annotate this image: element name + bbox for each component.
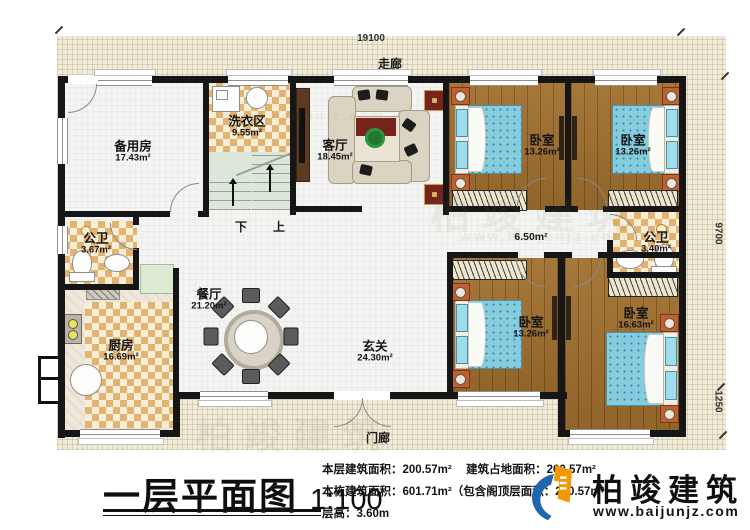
room-label-bedroom3: 卧室 13.26m² [513,316,548,339]
wall [565,252,572,258]
wall-tv [572,116,577,160]
cushion [357,89,370,101]
stair-up-label: 上 [271,218,287,235]
dimension-width: 19100 [341,33,401,44]
window-sill [198,400,272,407]
kitchen-round-table [70,364,102,396]
brand-logo-icon [524,462,584,522]
room-label-spare-room: 备用房 17.43m² [114,140,152,163]
dining-chair [204,328,219,346]
window [334,75,408,86]
room-label-dining: 餐厅 21.20m² [191,288,226,311]
brand-website: www.baijunjz.com [593,503,739,519]
window-sill [226,69,292,76]
room-label-kitchen: 厨房 16.69m² [103,339,138,362]
fridge [140,264,174,294]
room-area: 16.63m² [618,321,653,331]
wall [443,80,449,215]
room-label-bath-right: 公卫 3.40m² [641,231,671,254]
room-label-bedroom4: 卧室 16.63m² [618,307,653,330]
window-sill [94,69,156,76]
wall-tv [552,296,557,340]
wall [58,211,170,217]
dining-table-top [234,320,268,354]
window [228,75,288,86]
wall [290,206,362,212]
title-underline [103,509,321,512]
wall [290,80,296,215]
stat-label: 层高： [322,508,357,520]
stair-arrowhead [266,164,274,170]
stat-value: 3.60m [357,508,390,520]
nightstand [451,283,470,301]
room-label-bedroom1: 卧室 13.26m² [524,134,559,157]
window-sill [332,69,412,76]
wall [603,206,686,212]
room-label-entry-hall: 玄关 24.30m² [357,340,392,363]
bed-sheet [468,107,486,172]
dimension-height-porch: 1250 [713,377,724,427]
pillow [456,304,468,332]
stair-down-label: 下 [233,218,249,235]
wall [545,206,578,212]
wall [565,80,571,212]
laundry-sink [246,87,268,109]
room-area: 3.40m² [641,245,671,255]
window [595,75,657,86]
pillow [456,109,468,137]
dining-chair [284,328,299,346]
side-door-gap [68,75,98,84]
room-area: 18.45m² [317,153,352,163]
stair-arrow [232,184,234,206]
window [57,226,68,254]
bath-sink [104,254,130,272]
cushion [359,164,373,176]
plant [365,128,385,148]
room-area: 13.26m² [615,148,650,158]
stat-value: 200.57m² [403,464,452,476]
window-sill [468,69,542,76]
kitchen-floor [85,302,173,428]
wall-tv [566,296,571,340]
stove-burner [68,319,78,329]
window [470,75,538,86]
window-sill [593,69,661,76]
room-area: 16.69m² [103,353,138,363]
dimension-tick [55,26,63,34]
dimension-tick [677,28,685,36]
window [96,75,152,86]
window-sill [568,438,654,445]
room-area: 13.26m² [524,148,559,158]
title-underline-thin [103,515,321,516]
speaker-mat [424,90,445,111]
cushion [375,89,388,100]
wall [443,206,520,212]
room-area: 17.43m² [114,154,152,164]
pillow [666,141,678,169]
window-sill [456,400,544,407]
speaker-mat [424,184,445,205]
toilet-tank [69,272,95,282]
room-area: 3.67m² [81,246,111,256]
wall [198,211,209,217]
nightstand [451,370,470,388]
pillow [665,337,677,366]
wall [544,252,558,258]
room-area: 21.20m² [191,302,226,312]
room-label-bedroom2: 卧室 13.26m² [615,134,650,157]
dining-chair [242,288,260,303]
nightstand [660,405,679,423]
pillow [666,109,678,137]
room-area: 9.55m² [228,129,266,139]
stair-arrowhead [229,178,237,184]
dimension-height-main: 9700 [713,204,724,264]
bed-sheet [644,334,664,404]
window [57,118,68,164]
stair-arrow [269,170,271,192]
room-label-laundry: 洗衣区 9.55m² [228,115,266,138]
bed-sheet [468,302,486,367]
wall [607,272,686,278]
room-label-living-room: 客厅 18.45m² [317,139,352,162]
room-label-bath-left: 公卫 3.67m² [81,232,111,255]
wall-tv [559,116,564,160]
room-area: 13.26m² [513,330,548,340]
wall [558,252,565,437]
pillow [456,141,468,169]
stat-label: 本层建筑面积： [322,464,403,476]
pillow [665,371,677,400]
wall [447,252,518,258]
floor-plan-page: 19100 9700 1250 走廊 门廊 下 上 [0,0,750,530]
building-logo-icon [524,462,584,522]
pillow [456,336,468,364]
window-sill [78,438,164,445]
stair-flight-down [209,182,251,210]
washing-machine-door [216,90,228,100]
wardrobe [608,277,678,297]
wall [447,252,453,398]
stat-label: 本栋建筑面积： [322,486,403,498]
wall [203,80,209,215]
room-area: 24.30m² [357,354,392,364]
nightstand [451,87,470,105]
nightstand [660,314,679,332]
hallway-area-label: 6.50m² [505,231,557,243]
stove-burner [68,330,78,340]
dining-chair [242,369,260,384]
porch-label: 门廊 [356,429,400,446]
wall [173,268,179,398]
wall [58,284,139,290]
tv [299,108,305,163]
